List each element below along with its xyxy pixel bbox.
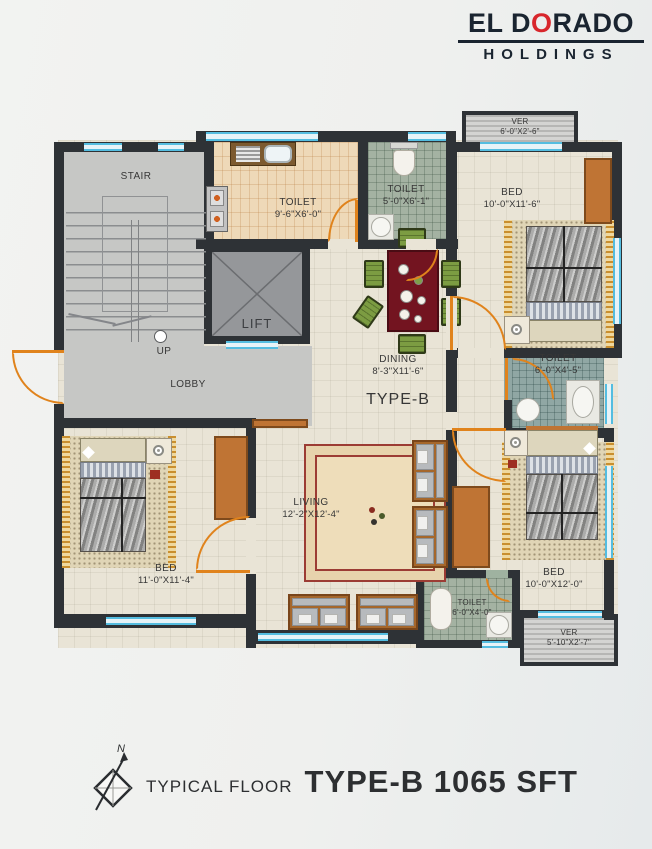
bed2-rug-fringe — [62, 436, 70, 568]
window-bed3-right — [605, 466, 613, 558]
north-label: N — [117, 743, 125, 755]
toilet-mid-door-leaf — [505, 358, 508, 400]
window-toilet-top — [408, 132, 446, 141]
dining-label: DINING8'-3"X11'-6" — [336, 353, 460, 378]
verandah-top-label: VER6'-0"X2'-6" — [464, 117, 576, 137]
bed3-pillows — [526, 456, 598, 474]
stair-label: STAIR — [96, 170, 176, 183]
kitchen-drainboard — [236, 146, 260, 162]
toilet-mid-wc — [572, 386, 594, 418]
verandah-bottom-label: VER5'-10"X2'-7" — [524, 628, 614, 648]
window-toilet-mid — [605, 384, 613, 424]
bed2-label: BED11'-0"X11'-4" — [100, 562, 232, 587]
bed2-decor-item — [150, 470, 160, 479]
kitchen-stove — [206, 186, 228, 232]
window-living-bottom — [258, 633, 388, 641]
type-b-label: TYPE-B — [336, 390, 460, 411]
living-sofa — [356, 594, 418, 630]
lift-label: LIFT — [212, 316, 302, 331]
north-arrow-icon — [86, 748, 140, 814]
toilet-top-wc — [393, 150, 415, 176]
bed3-lamp — [510, 437, 521, 448]
window-bed2-bottom — [106, 617, 196, 625]
bed2-pillows — [80, 462, 146, 478]
bed3-decor-item — [508, 460, 517, 468]
living-label: LIVING12'-2"X12'-4" — [248, 496, 374, 521]
bed1-headboard — [526, 320, 602, 342]
toilet-bottom-label: TOILET6'-0"X4'-0" — [430, 598, 514, 618]
bed2-lamp — [153, 445, 164, 456]
dining-plate — [399, 309, 410, 320]
living-sofa — [412, 506, 448, 568]
bed2-wardrobe — [214, 436, 248, 520]
window-verandah-top — [480, 142, 562, 151]
stair-flight-outline — [102, 196, 168, 312]
window-bed1-right — [613, 238, 621, 324]
logo-accent-letter: O — [531, 8, 553, 38]
footer-title-block: TYPICAL FLOOR TYPE-B 1065 SFT — [146, 764, 578, 800]
lobby-threshold — [252, 419, 308, 428]
bed1-pillows — [526, 302, 602, 320]
wall-stair-top — [54, 142, 212, 152]
bed2-blanket — [80, 478, 146, 552]
kitchen-sink — [264, 145, 292, 163]
toilet-mid-label: TOILET6'-0"X4'-5" — [514, 352, 602, 377]
logo: EL DORADO HOLDINGS — [458, 8, 644, 63]
living-sofa — [288, 594, 350, 630]
bed1-label: BED10'-0"X11'-6" — [452, 186, 572, 211]
living-sofa — [412, 440, 448, 502]
bed3-label: BED10'-0"X12'-0" — [494, 566, 614, 591]
wall-left-upper — [54, 142, 64, 352]
footer-title: TYPE-B 1065 SFT — [305, 764, 578, 800]
logo-divider — [458, 40, 644, 43]
window-stair-1 — [84, 143, 122, 151]
dining-chair — [441, 260, 461, 288]
stove-burner — [210, 190, 224, 206]
toilet-top-door-opening — [406, 239, 436, 249]
toilet-top-basin — [371, 217, 391, 237]
bed3-blanket-fold — [561, 474, 563, 540]
dining-plate — [414, 315, 422, 323]
dining-plate — [400, 290, 413, 303]
bed1-blanket-fold — [563, 226, 565, 302]
lobby-label: LOBBY — [140, 378, 236, 391]
entrance-door-arc — [12, 352, 64, 404]
window-toilet-bottom — [482, 641, 508, 648]
toilet-bottom-basin — [489, 615, 509, 635]
dining-plate — [417, 296, 426, 305]
stair-up-marker — [154, 330, 167, 343]
wall-lobby-bottom — [54, 418, 256, 428]
lift-cab: LIFT — [212, 252, 302, 336]
stove-burner — [210, 211, 224, 227]
living-rug-motif — [379, 513, 385, 519]
dining-chair — [398, 334, 426, 354]
logo-subtitle: HOLDINGS — [458, 46, 644, 63]
dining-chair — [364, 260, 384, 288]
footer-floor-label: TYPICAL FLOOR — [146, 777, 293, 797]
window-verandah-bottom — [538, 611, 602, 618]
page: EL DORADO HOLDINGS LIFT — [0, 0, 652, 849]
kitchen-label: TOILET9'-6"X6'-0" — [238, 196, 358, 221]
bed2-blanket-fold — [80, 497, 146, 499]
toilet-mid-basin — [516, 398, 540, 422]
lift-door-window — [226, 341, 278, 349]
toilet-top-tank — [390, 142, 418, 149]
bed2-blanket-fold — [121, 478, 123, 552]
bed1-wardrobe — [584, 158, 612, 224]
logo-wordmark: EL DORADO — [458, 8, 644, 39]
bed1-lamp — [511, 324, 522, 335]
window-stair-2 — [158, 143, 184, 151]
stair-up-label: UP — [144, 345, 184, 358]
window-kitchen — [206, 132, 318, 141]
toilet-top-label: TOILET5'-0"X6'-1" — [364, 183, 448, 208]
bed3-wardrobe — [452, 486, 490, 568]
